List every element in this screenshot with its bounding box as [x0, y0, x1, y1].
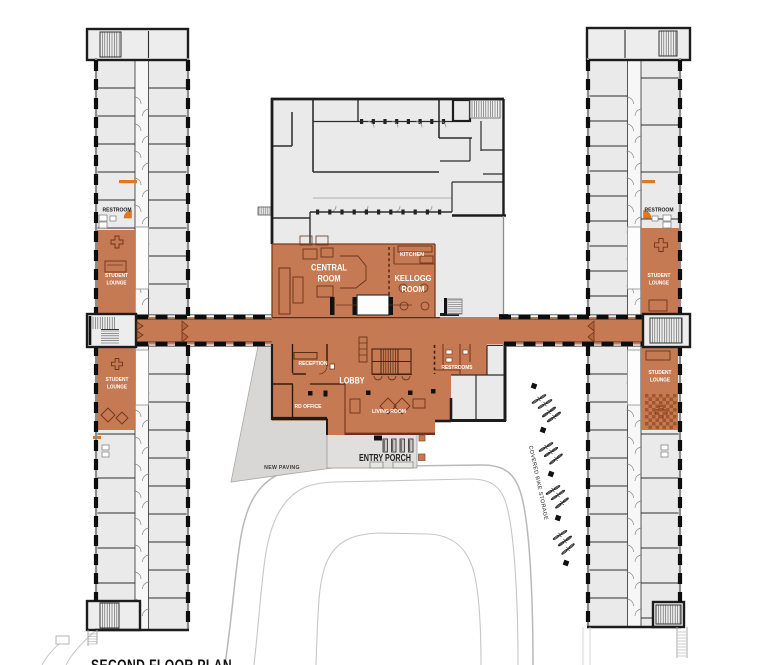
- svg-text:RD OFFICE: RD OFFICE: [295, 404, 322, 410]
- svg-text:LIVING ROOM: LIVING ROOM: [372, 409, 406, 415]
- svg-text:RESTROOMS: RESTROOMS: [442, 365, 473, 371]
- svg-text:STUDENT: STUDENT: [105, 273, 129, 279]
- svg-text:RECEPTION: RECEPTION: [299, 361, 328, 367]
- svg-text:RESTROOM: RESTROOM: [645, 208, 674, 214]
- svg-text:NEW PAVING: NEW PAVING: [264, 465, 300, 471]
- svg-text:SECOND FLOOR PLAN: SECOND FLOOR PLAN: [91, 658, 232, 665]
- svg-text:ENTRY PORCH: ENTRY PORCH: [359, 453, 411, 464]
- svg-text:RESTROOM: RESTROOM: [103, 208, 132, 214]
- svg-text:STUDENT: STUDENT: [648, 273, 672, 279]
- svg-text:KELLOGG: KELLOGG: [395, 273, 432, 283]
- svg-text:STUDENT: STUDENT: [649, 370, 673, 376]
- svg-text:LOUNGE: LOUNGE: [107, 281, 127, 287]
- svg-text:CENTRAL: CENTRAL: [311, 263, 347, 273]
- svg-text:LOBBY: LOBBY: [340, 376, 365, 387]
- svg-text:STUDENT: STUDENT: [106, 377, 130, 383]
- svg-text:ROOM: ROOM: [318, 274, 341, 284]
- svg-text:LOUNGE: LOUNGE: [650, 378, 670, 384]
- svg-text:ROOM: ROOM: [402, 284, 425, 294]
- svg-text:LOUNGE: LOUNGE: [107, 385, 127, 391]
- svg-text:KITCHEN: KITCHEN: [400, 252, 424, 258]
- svg-text:LOUNGE: LOUNGE: [649, 281, 669, 287]
